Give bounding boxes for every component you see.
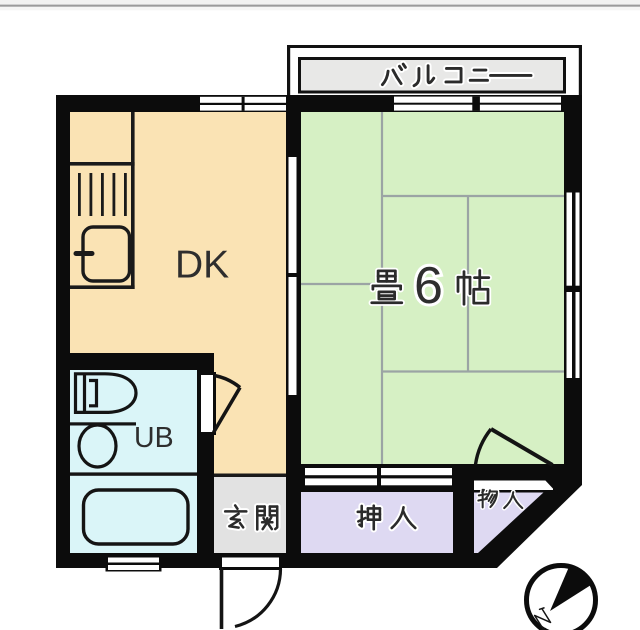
svg-text:6: 6	[414, 257, 443, 315]
svg-text:UB: UB	[134, 422, 174, 454]
svg-text:DK: DK	[175, 244, 229, 287]
